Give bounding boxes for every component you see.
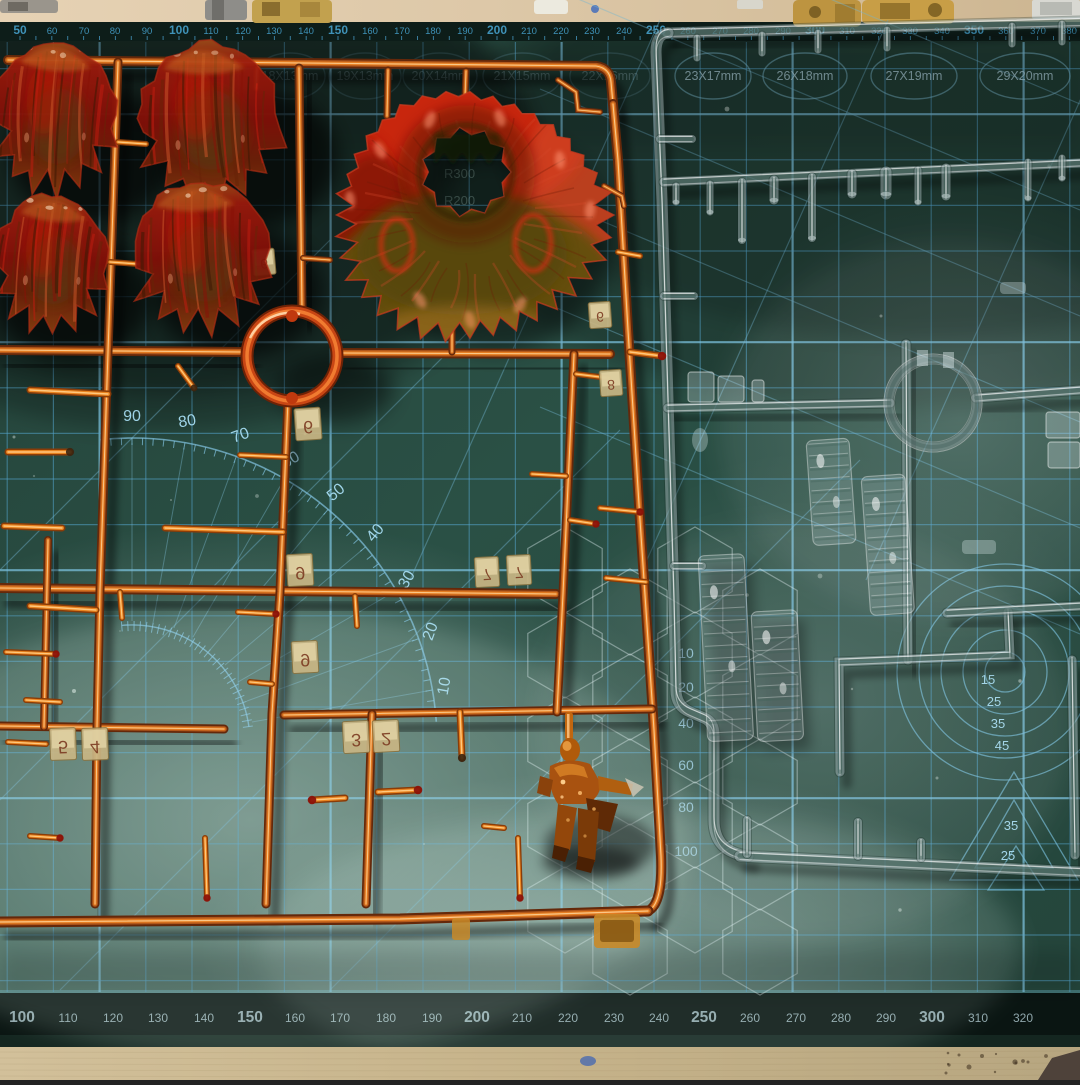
svg-text:8: 8 xyxy=(607,377,616,394)
svg-text:3: 3 xyxy=(351,730,362,750)
svg-text:2: 2 xyxy=(381,729,392,749)
svg-text:180: 180 xyxy=(425,26,441,37)
svg-text:220: 220 xyxy=(553,26,569,37)
svg-text:6: 6 xyxy=(303,417,314,438)
svg-text:7: 7 xyxy=(514,563,524,580)
svg-text:70: 70 xyxy=(79,26,90,37)
svg-text:6: 6 xyxy=(596,309,605,326)
svg-text:150: 150 xyxy=(328,23,348,37)
svg-text:120: 120 xyxy=(235,26,251,37)
svg-text:50: 50 xyxy=(13,23,27,37)
svg-text:170: 170 xyxy=(394,26,410,37)
svg-text:160: 160 xyxy=(362,26,378,37)
svg-text:90: 90 xyxy=(123,408,141,425)
svg-text:80: 80 xyxy=(110,26,121,37)
svg-text:80: 80 xyxy=(177,412,198,432)
svg-text:90: 90 xyxy=(142,26,153,37)
svg-text:200: 200 xyxy=(487,23,507,37)
svg-text:130: 130 xyxy=(266,26,282,37)
svg-text:9: 9 xyxy=(300,650,311,670)
svg-text:4: 4 xyxy=(90,737,101,757)
svg-text:140: 140 xyxy=(298,26,314,37)
svg-text:7: 7 xyxy=(482,565,492,582)
svg-text:60: 60 xyxy=(47,26,58,37)
svg-text:230: 230 xyxy=(584,26,600,37)
svg-text:320: 320 xyxy=(1013,1011,1033,1025)
svg-text:5: 5 xyxy=(58,737,69,757)
svg-text:240: 240 xyxy=(616,26,632,37)
svg-text:9: 9 xyxy=(295,563,306,583)
svg-text:110: 110 xyxy=(203,26,218,37)
svg-text:100: 100 xyxy=(169,23,189,37)
svg-text:210: 210 xyxy=(521,26,537,37)
svg-text:190: 190 xyxy=(457,26,473,37)
